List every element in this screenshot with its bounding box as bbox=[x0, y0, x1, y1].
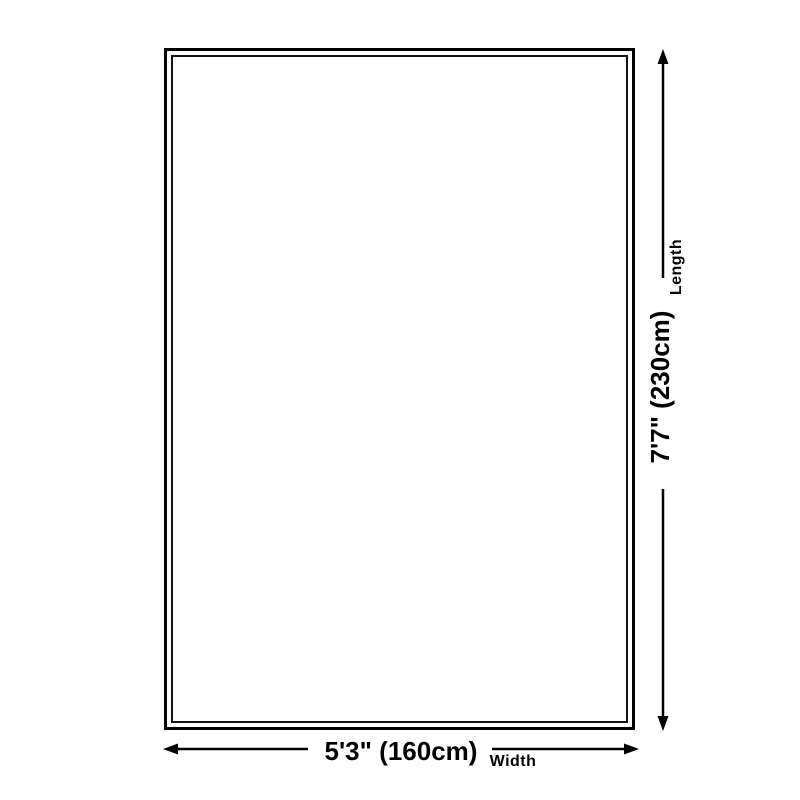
length-label: Length bbox=[669, 239, 685, 295]
length-value: 7'7" (230cm) bbox=[647, 311, 673, 464]
width-label: Width bbox=[490, 754, 537, 770]
rug-inner-border bbox=[171, 55, 628, 723]
rug-dimension-diagram: 7'7" (230cm) Length 5'3" (160cm) Width bbox=[0, 0, 800, 800]
width-value: 5'3" (160cm) bbox=[325, 738, 478, 764]
length-arrow-down-head bbox=[658, 716, 669, 731]
rug-outline bbox=[164, 48, 635, 730]
width-arrow-left-head bbox=[163, 744, 178, 755]
width-arrow-right-head bbox=[624, 744, 639, 755]
length-arrow-up-head bbox=[658, 49, 669, 64]
